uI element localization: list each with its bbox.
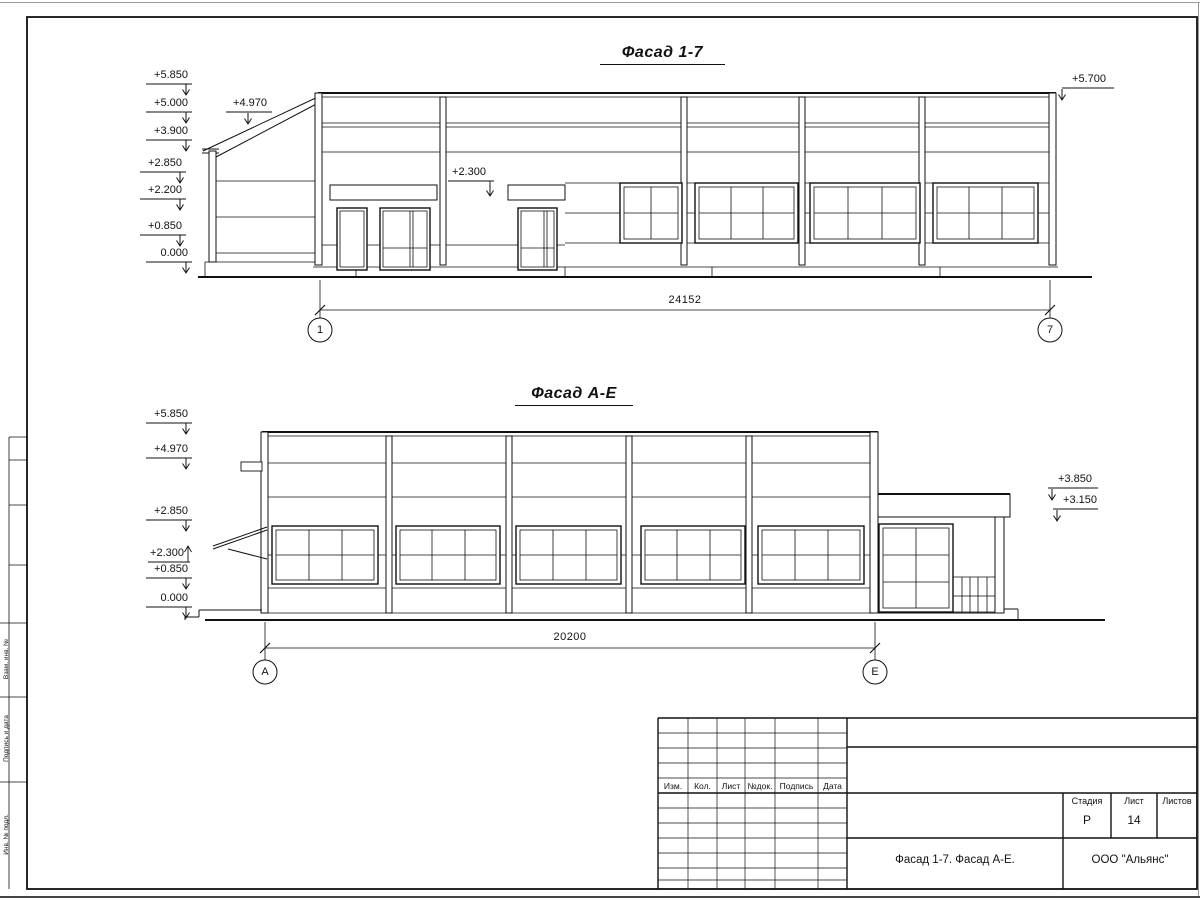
dimension-value: 24152 [635, 294, 735, 306]
elevation-mark: +2.300 [446, 166, 492, 178]
facade-a-e-annex [878, 494, 1018, 620]
title-block-col-podpis: Подпись [775, 779, 818, 793]
facade-a-e-windows [272, 526, 864, 584]
title-block-col-ndok: №док. [745, 779, 775, 793]
sheets-label: Листов [1157, 794, 1197, 808]
elevation-mark: +2.200 [122, 184, 182, 196]
stage-label: Стадия [1063, 794, 1111, 808]
elevation-mark: +5.700 [1064, 73, 1114, 85]
elevation-mark: +2.850 [128, 505, 188, 517]
elevation-mark: +3.850 [1050, 473, 1100, 485]
dimension-value: 20200 [520, 631, 620, 643]
company-name: ООО "Альянс" [1063, 853, 1197, 867]
facade-1-7-drawing [140, 84, 1114, 342]
elevation-mark: +4.970 [128, 443, 188, 455]
drawing-sheet: Фасад 1-7 +5.850 +5.000 +3.900 +2.850 +2… [0, 0, 1200, 900]
title-block-col-izm: Изм. [658, 779, 688, 793]
elevation-mark: 0.000 [128, 247, 188, 259]
strip-label-vzam: Взам. инв. № [3, 623, 10, 695]
strip-label-inv: Инв. № подл. [3, 782, 10, 887]
elevation-mark: +5.850 [128, 408, 188, 420]
strip-label-podpis: Подпись и дата [3, 697, 10, 780]
facade-a-e-elevation-marks [146, 423, 1098, 618]
facade-1-7-title: Фасад 1-7 [600, 44, 725, 65]
elevation-mark: +0.850 [122, 220, 182, 232]
elevation-mark: +3.150 [1055, 494, 1105, 506]
stage-value: Р [1063, 812, 1111, 828]
title-block-col-data: Дата [818, 779, 847, 793]
title-block-col-list: Лист [717, 779, 745, 793]
facade-a-e-drawing [146, 423, 1105, 684]
elevation-mark: 0.000 [128, 592, 188, 604]
facade-a-e-title: Фасад А-Е [515, 385, 633, 406]
axis-bubble-e: Е [863, 661, 887, 683]
doc-title: Фасад 1-7. Фасад А-Е. [847, 853, 1063, 867]
elevation-mark: +4.970 [226, 97, 274, 109]
axis-bubble-1: 1 [308, 319, 332, 341]
elevation-mark: +3.900 [128, 125, 188, 137]
door-1 [337, 208, 367, 270]
door-2 [380, 208, 430, 270]
sheet-label: Лист [1111, 794, 1157, 808]
axis-bubble-a: А [253, 661, 277, 683]
elevation-mark: +2.850 [122, 157, 182, 169]
elevation-mark: +0.850 [128, 563, 188, 575]
axis-bubble-7: 7 [1038, 319, 1062, 341]
sheet-value: 14 [1111, 812, 1157, 828]
elevation-mark: +5.850 [128, 69, 188, 81]
title-block-col-kol: Кол. [688, 779, 717, 793]
elevation-mark: +5.000 [128, 97, 188, 109]
door-3 [518, 208, 557, 270]
facade-1-7-dimension [308, 280, 1062, 342]
elevation-mark: +2.300 [124, 547, 184, 559]
